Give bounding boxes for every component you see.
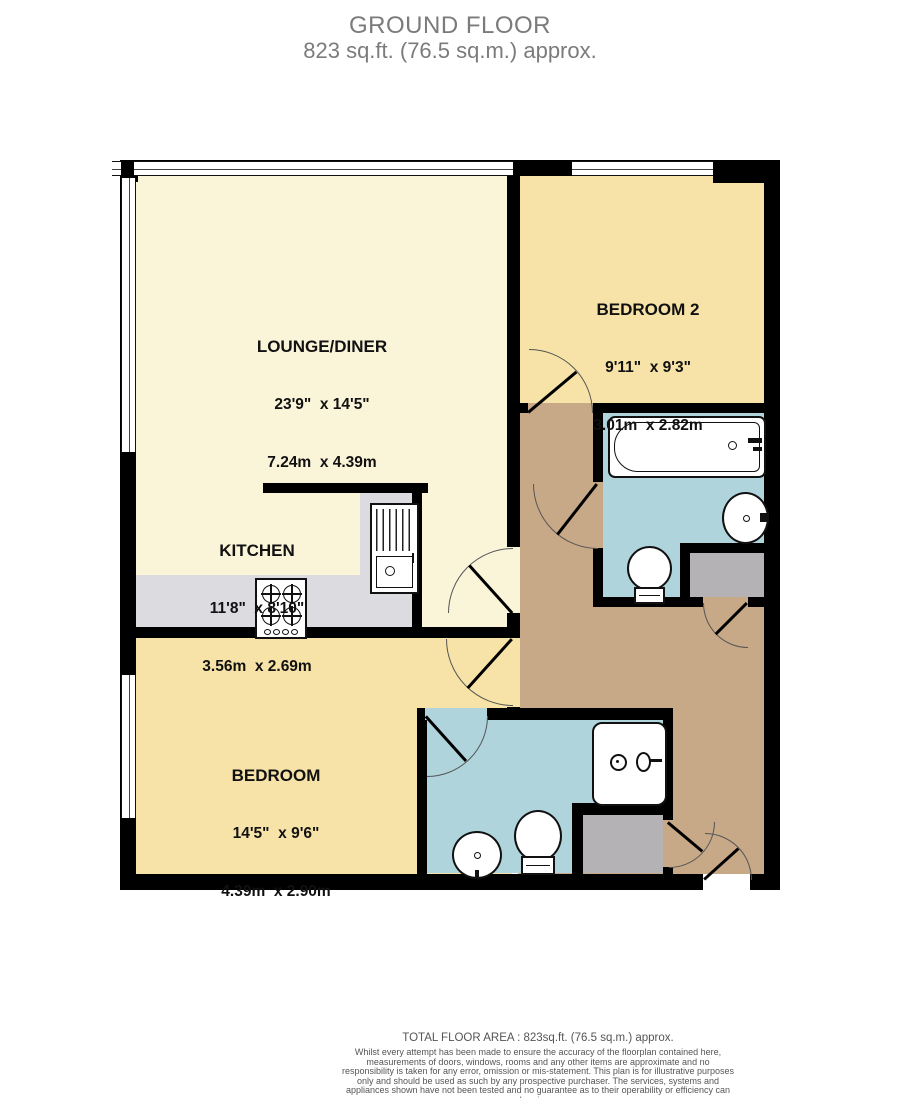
bedroom2-label: BEDROOM 2 9'11" x 9'3" 3.01m x 2.82m [593,263,702,473]
wall-shower-room-top-b [487,708,673,720]
sink-tap [412,553,415,563]
bathroom-toilet-bowl [627,546,672,591]
shower-room-toilet-cistern [521,856,555,875]
wall-bedroom2-left [507,176,520,413]
room-dim-imperial: 9'11" x 9'3" [593,357,702,379]
wall-shower-room-right-b [663,867,673,890]
floorplan: LOUNGE/DINER 23'9" x 14'5" 7.24m x 4.39m… [120,160,780,890]
room-dim-imperial: 11'8" x 8'10" [202,598,311,620]
shower-valve [636,752,651,772]
page-subtitle: 823 sq.ft. (76.5 sq.m.) approx. [0,38,900,64]
lounge-diner-label: LOUNGE/DINER 23'9" x 14'5" 7.24m x 4.39m [257,300,387,510]
room-name: KITCHEN [202,540,311,562]
bath-tap-handle [753,447,762,451]
wall-shower-cupboard-left [572,803,583,890]
room-dim-metric: 3.01m x 2.82m [593,415,702,437]
room-dim-imperial: 23'9" x 14'5" [257,394,387,416]
bathroom-toilet-cistern [634,587,665,604]
kitchen-sink-unit [370,503,419,594]
total-floor-area: TOTAL FLOOR AREA : 823sq.ft. (76.5 sq.m.… [323,1032,753,1044]
basin-drain [474,852,481,859]
bathroom-basin [722,492,769,544]
window-bedroom2-top [572,161,713,176]
bath-overflow [728,441,737,450]
wall-kitchen-bedroom [120,627,520,638]
bath-tap [748,438,762,443]
wall-bathroom-cupboard-top [690,543,765,553]
room-dim-imperial: 14'5" x 9'6" [221,823,330,845]
room-name: LOUNGE/DINER [257,336,387,358]
bedroom-label: BEDROOM 14'5" x 9'6" 4.39m x 2.90m [221,729,330,939]
page-title: GROUND FLOOR [0,12,900,40]
outer-wall-bottom [120,874,780,890]
basin-tap [475,870,479,879]
basin-tap [760,513,769,522]
room-name: BEDROOM [221,765,330,787]
corner-block-top-right [713,160,780,183]
wall-bedroom2-bottom-a [507,403,528,413]
disclaimer-text: Whilst every attempt has been made to en… [342,1048,734,1098]
shower-drain [610,754,627,771]
kitchen-label: KITCHEN 11'8" x 8'10" 3.56m x 2.69m [202,504,311,714]
window-lounge-left [121,178,136,452]
room-dim-metric: 3.56m x 2.69m [202,656,311,678]
wall-hallway-left-a [507,413,520,547]
footer: TOTAL FLOOR AREA : 823sq.ft. (76.5 sq.m.… [323,1032,753,1098]
basin-drain [743,515,750,522]
window-bedroom-left [121,675,136,818]
wall-bathroom-bottom-b [748,597,765,607]
floorplan-page: GROUND FLOOR 823 sq.ft. (76.5 sq.m.) app… [0,0,900,1098]
room-name: BEDROOM 2 [593,299,702,321]
bathroom-cupboard-floor [690,553,765,597]
sink-drainer [376,509,413,551]
window-overshoot-top-left [112,161,121,176]
wall-bathroom-cupboard-divider [680,543,690,607]
shower-room-basin [452,831,502,879]
shower-cubicle [592,722,667,806]
room-dim-metric: 7.24m x 4.39m [257,452,387,474]
shower-room-toilet-bowl [514,810,562,862]
wall-shower-room-left [417,708,427,890]
shower-arm [649,759,662,762]
shower-room-cupboard-floor [583,815,663,873]
room-dim-metric: 4.39m x 2.90m [221,881,330,903]
sink-basin [376,556,413,588]
window-lounge-top [134,161,513,176]
